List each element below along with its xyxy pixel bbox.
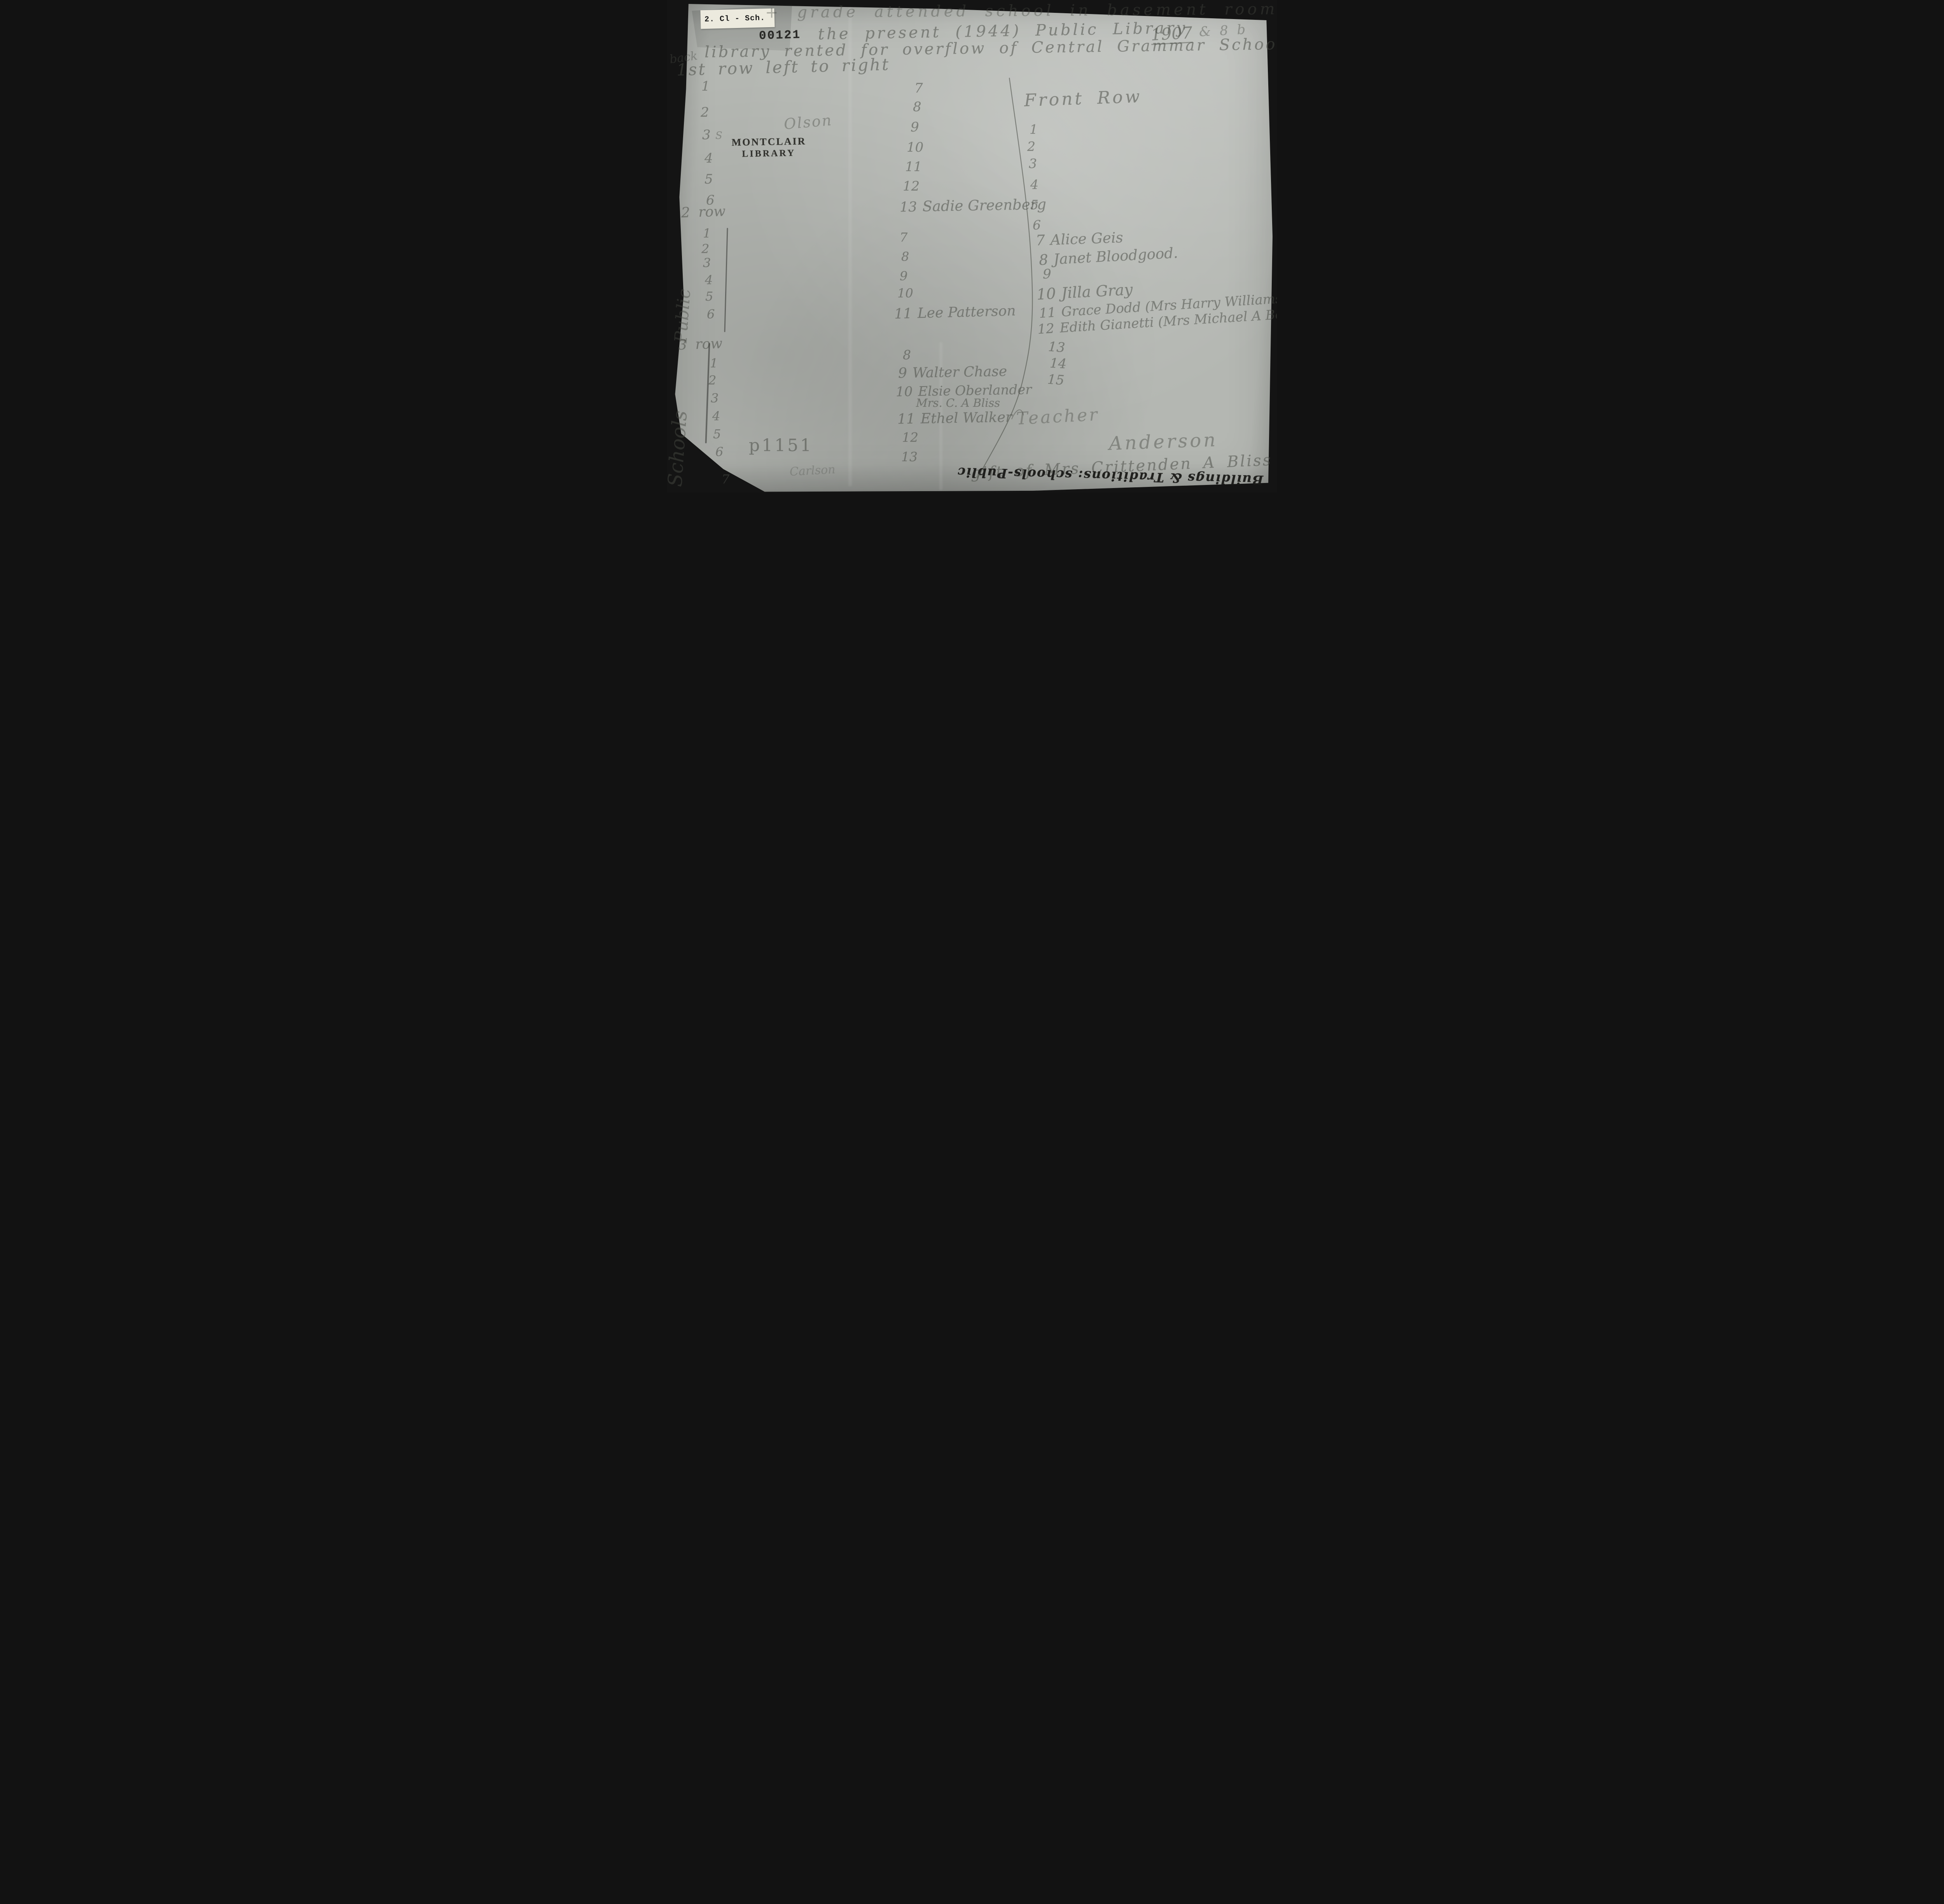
accession-number-stamp: 00121 [759, 28, 801, 43]
front-row-entry: 15 [1047, 373, 1065, 387]
entry-number: 9 [1043, 266, 1051, 282]
row3-number: 5 [713, 428, 721, 440]
entry-name: Walter Chase [913, 364, 1007, 381]
front-row-entry: 13 [1048, 340, 1066, 355]
row3-number: 2 [708, 374, 716, 387]
entry-name: Lee Patterson [917, 303, 1016, 322]
row1-side-name: Olson [783, 113, 833, 132]
row1-number: 3 [702, 128, 711, 142]
front-row-heading: Front Row [1024, 88, 1142, 110]
row3-number: 1 [710, 357, 718, 369]
entry-number: 11 [897, 411, 916, 427]
row2-number: 4 [705, 274, 713, 286]
classification-label: 2. Cl - Sch. [705, 14, 766, 24]
row1-number: 4 [705, 152, 713, 165]
row3-number: 7 [722, 473, 729, 485]
row3-entry: 11Ethel Walker [897, 410, 1012, 426]
row2-number: 6 [707, 308, 715, 320]
row3-entry: 9Walter Chase [898, 365, 1007, 381]
front-row-number: 1 [1030, 123, 1038, 136]
teacher-label: Teacher [1016, 406, 1100, 427]
library-stamp-line2: LIBRARY [732, 148, 806, 159]
row3-number: 4 [712, 410, 720, 422]
row1-number: 1 [701, 80, 710, 93]
row1-flourish: S [715, 131, 722, 141]
row1-mid-number: 7 [914, 82, 923, 95]
front-row-number: 5 [1030, 198, 1038, 211]
row2-mid-number: 10 [897, 287, 913, 299]
entry-name: Ethel Walker [920, 409, 1012, 427]
row3-mid-number: 8 [903, 348, 911, 361]
row1-mid-number: 12 [903, 180, 920, 193]
row1-number: 2 [701, 106, 709, 119]
row2-mid-number: 9 [900, 270, 907, 282]
row2-heading: 2 row [681, 205, 726, 220]
front-row-number: 3 [1029, 157, 1037, 170]
row3-entry-name2: Mrs. C. A Bliss [916, 397, 1000, 409]
row1-mid-number: 10 [907, 141, 923, 154]
scanned-photo-back: 2. Cl - Sch. 00121 MONTCLAIR LIBRARY + g… [667, 0, 1277, 493]
teacher-name: Anderson [1108, 430, 1218, 453]
entry-name: Alice Geis [1050, 229, 1123, 248]
row3-mid-number: 13 [901, 450, 918, 463]
front-row-number: 4 [1030, 178, 1038, 191]
row3-number: 3 [711, 392, 719, 404]
entry-number: 9 [898, 365, 907, 381]
row1-number: 5 [705, 173, 713, 186]
row2-number: 3 [703, 257, 711, 269]
entry-number: 11 [1038, 304, 1056, 321]
row1-entry-13: 13Sadie Greenberg [900, 197, 1047, 215]
paper-crease [848, 8, 852, 486]
row2-number: 5 [705, 290, 713, 303]
entry-number: 15 [1047, 372, 1065, 388]
front-row-number: 6 [1033, 219, 1041, 231]
front-row-entry: 9 [1043, 268, 1057, 281]
row1-entry-name: Sadie Greenberg [922, 196, 1046, 215]
vertical-note-schools: Schools [667, 339, 695, 488]
row1-mid-number: 11 [905, 160, 922, 173]
faint-name-note: Carlson [789, 464, 836, 478]
entry-number: 11 [894, 306, 913, 322]
front-row-number: 2 [1027, 140, 1035, 153]
front-row-entry: 7Alice Geis [1035, 230, 1123, 248]
entry-name: Jilla Gray [1061, 281, 1133, 303]
entry-number: 8 [1038, 251, 1049, 268]
row1-mid-number: 9 [911, 121, 919, 134]
entry-number: 10 [896, 384, 913, 400]
entry-number: 10 [1036, 285, 1056, 304]
row1-mid-number: 8 [913, 100, 921, 114]
classification-sticker: 2. Cl - Sch. [700, 9, 774, 29]
row2-entry-11: 11Lee Patterson [894, 304, 1016, 321]
row2-mid-number: 8 [901, 250, 909, 263]
entry-number: 14 [1049, 355, 1067, 372]
row2-number: 2 [701, 243, 709, 255]
entry-number: 7 [1035, 232, 1045, 249]
call-number: p1151 [749, 437, 813, 454]
row3-mid-number: 12 [902, 431, 918, 444]
row3-number: 6 [715, 446, 723, 458]
row2-mid-number: 7 [900, 231, 907, 243]
row1-entry-number: 13 [900, 199, 917, 215]
note-header-line1: + grade attended school in basement room [765, 1, 1277, 20]
library-stamp-line1: MONTCLAIR [731, 135, 805, 148]
row2-number: 1 [703, 227, 711, 240]
library-stamp: MONTCLAIR LIBRARY [731, 135, 806, 159]
entry-number: 12 [1037, 321, 1055, 338]
front-row-entry: 14 [1049, 357, 1067, 371]
entry-number: 13 [1048, 339, 1066, 356]
